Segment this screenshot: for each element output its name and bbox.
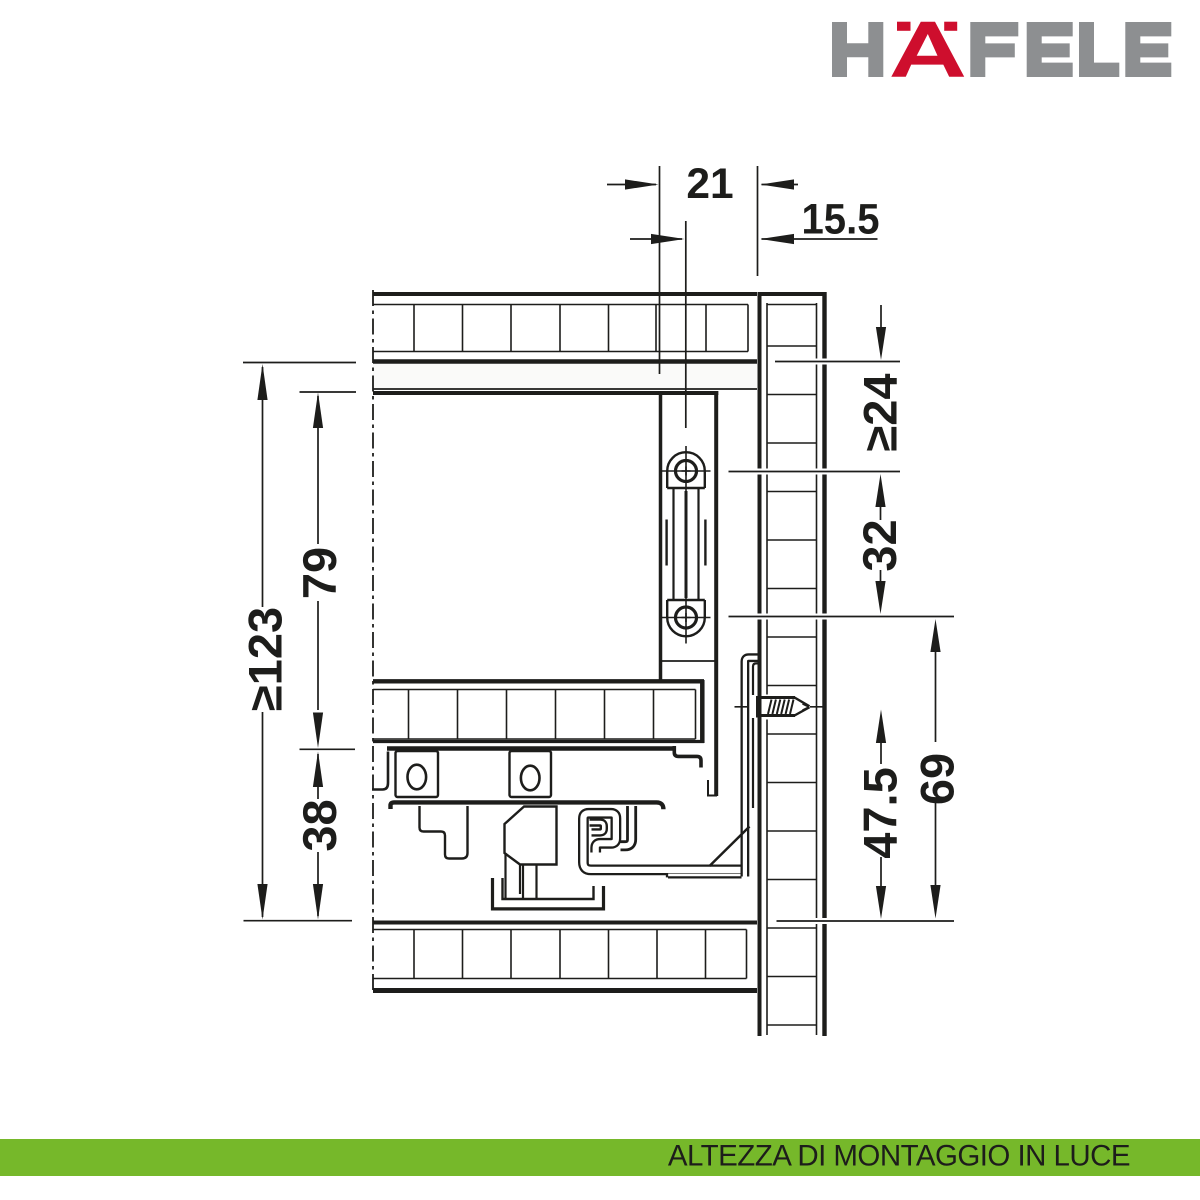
svg-text:≥123: ≥123 [239,607,292,711]
svg-text:15.5: 15.5 [802,197,880,244]
svg-text:69: 69 [911,753,964,805]
svg-text:32: 32 [853,519,906,571]
svg-text:47.5: 47.5 [854,767,907,858]
svg-text:21: 21 [686,161,733,208]
svg-text:≥24: ≥24 [854,373,907,451]
svg-text:38: 38 [293,799,346,851]
svg-text:79: 79 [293,547,346,599]
svg-text:ALTEZZA DI MONTAGGIO IN LUCE: ALTEZZA DI MONTAGGIO IN LUCE [668,1140,1130,1173]
